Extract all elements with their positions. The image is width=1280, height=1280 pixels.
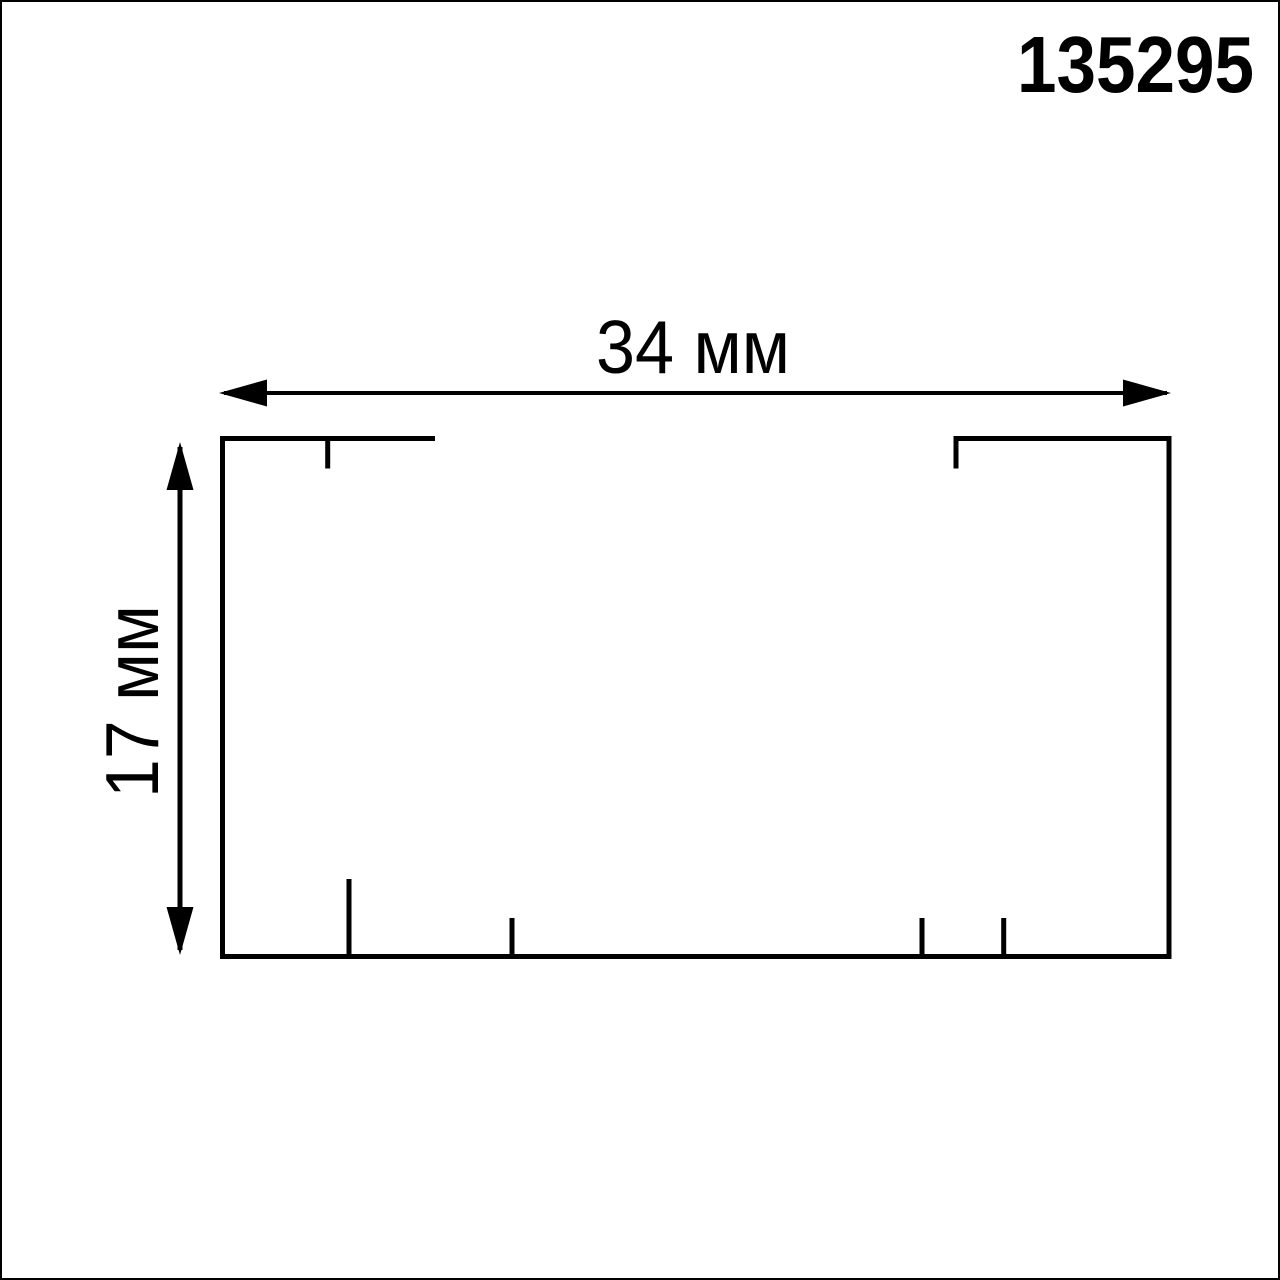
- svg-text:135295: 135295: [1017, 20, 1254, 109]
- svg-text:34 мм: 34 мм: [596, 305, 790, 389]
- svg-text:17 мм: 17 мм: [90, 605, 174, 798]
